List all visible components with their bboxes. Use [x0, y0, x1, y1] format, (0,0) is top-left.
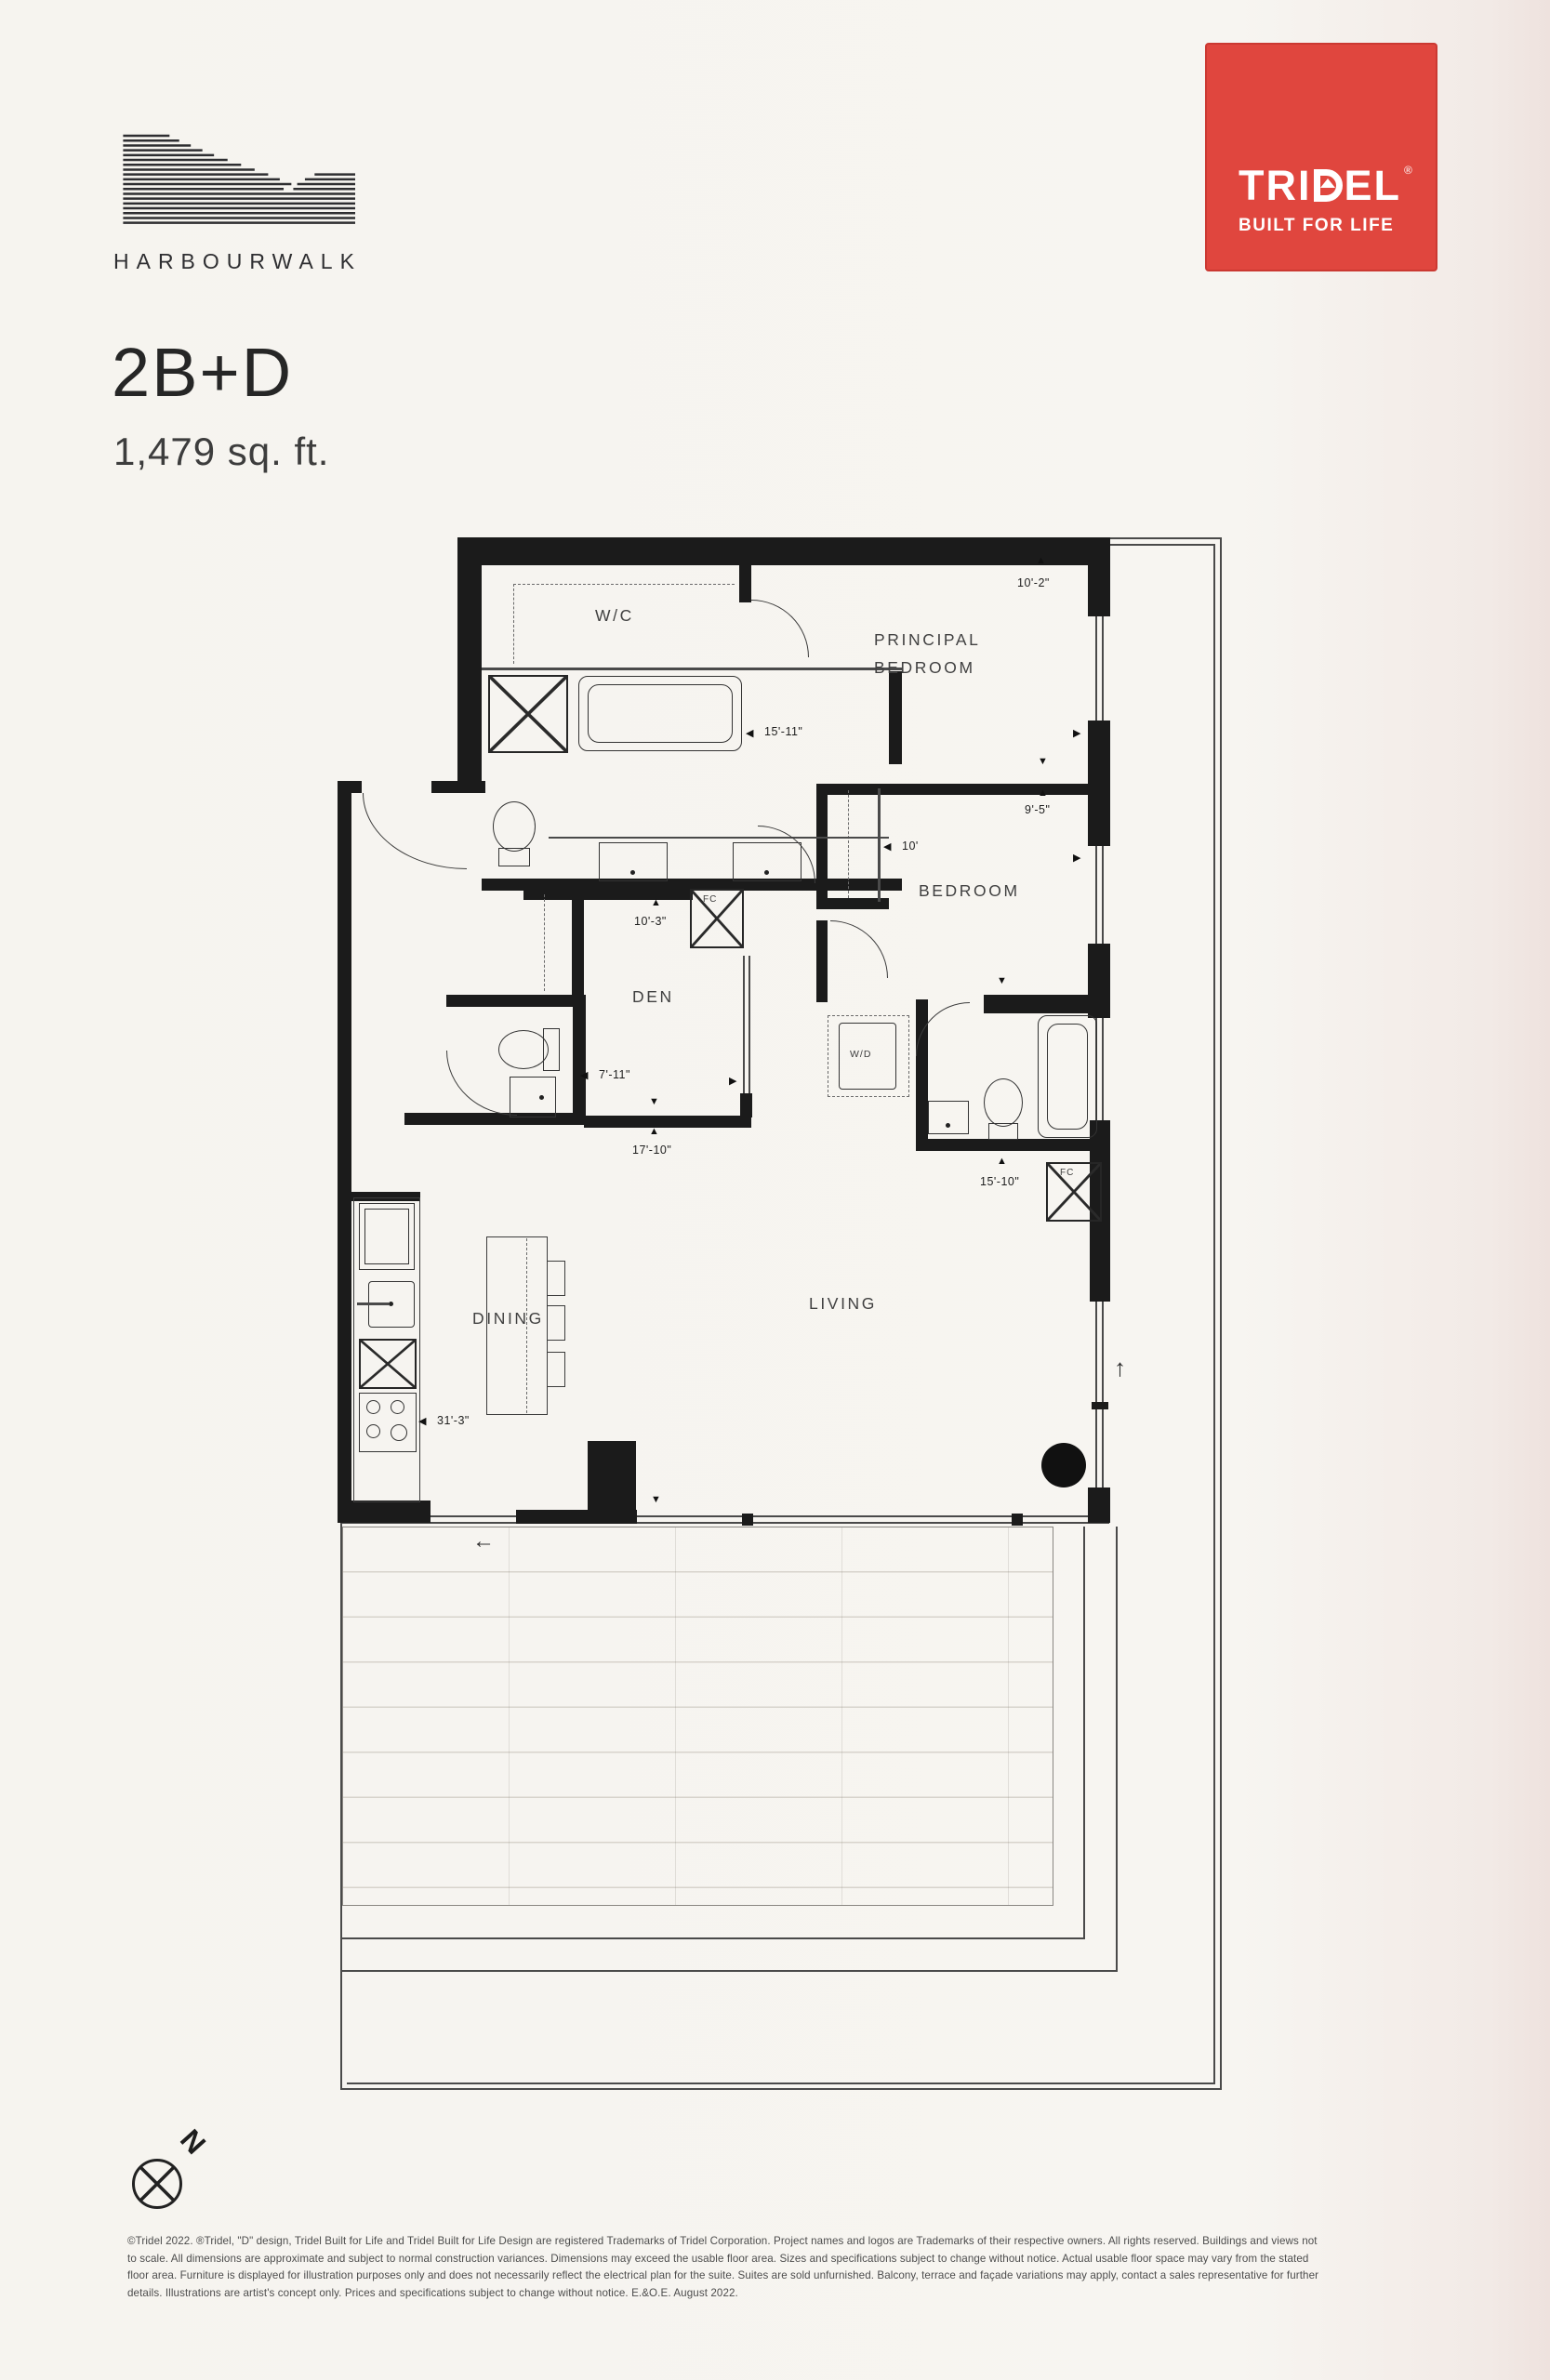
wall-bottom-corner [338, 1501, 431, 1523]
wall-left-lower [338, 788, 351, 1520]
wall-den-top [523, 889, 693, 900]
room-label-den: DEN [632, 987, 674, 1007]
terrace-outer-right1 [1220, 537, 1222, 2090]
window-bottom-pier2 [1012, 1514, 1023, 1526]
bath2-toilet-bowl [984, 1078, 1023, 1127]
dining-chair-1 [547, 1261, 565, 1296]
dim-arrow-up-icon: ▲ [651, 898, 661, 908]
dim-arrow-down-icon: ▼ [649, 1097, 659, 1107]
window-pointer-icon: ▼ [997, 976, 1007, 986]
room-label-bedroom: BEDROOM [919, 881, 1020, 901]
vanity-sink-1 [599, 842, 668, 881]
compass-north-label: N [173, 2123, 212, 2162]
window-right-tick [1092, 1402, 1108, 1409]
powder-sink-drain [539, 1095, 544, 1100]
dim-den-width: 10'-3" [634, 915, 667, 928]
dim-den-overall: 17'-10" [632, 1144, 671, 1157]
wall-bath2-left [916, 999, 928, 1150]
wall-den-bottom [584, 1116, 751, 1128]
stove-burner-3 [366, 1424, 380, 1438]
dim-arrow-left-icon: ◀ [746, 729, 753, 739]
wall-ensuite-right [889, 671, 902, 764]
terrace-outline-a-right [1083, 1527, 1085, 1939]
wall-bedroom-closet-left [816, 784, 828, 909]
dim-arrow-up-icon: ▲ [1038, 788, 1048, 799]
slider-pointer-icon: ▶ [729, 1077, 736, 1087]
legal-disclaimer: ©Tridel 2022. ®Tridel, "D" design, Tride… [127, 2233, 1429, 2302]
dim-arrow-left-icon: ◀ [883, 842, 891, 853]
terrace-outline-b-bottom [340, 1970, 1118, 1972]
room-label-wc: W/C [595, 606, 634, 626]
room-label-dining: DINING [472, 1309, 544, 1329]
terrace-outer-left [340, 1520, 342, 2090]
window-right-pier1 [1088, 537, 1110, 616]
bath2-sink-drain [946, 1123, 950, 1128]
wall-wc-right [739, 537, 751, 602]
dim-principal-width: 10'-2" [1017, 576, 1050, 589]
closet-row-top [482, 668, 902, 670]
wall-powder-top [446, 995, 586, 1007]
bedroom-closet-rod [848, 790, 849, 898]
dining-chair-3 [547, 1352, 565, 1387]
dim-suite-length: 31'-3" [437, 1414, 470, 1427]
terrace-outer-bottom2 [347, 2082, 1215, 2084]
dim-living-width: 15'-10" [980, 1175, 1019, 1188]
wc-shelf-dash [513, 584, 735, 585]
den-slider-line2 [749, 956, 750, 1093]
terrace-pavers [342, 1527, 1053, 1906]
dining-chair-2 [547, 1305, 565, 1341]
dim-arrow-left-icon: ◀ [580, 1071, 588, 1081]
dim-bedroom-closet: 10' [902, 840, 919, 853]
bath2-sink [928, 1101, 969, 1134]
powder-toilet-tank [543, 1028, 560, 1071]
legal-line-4: details. Illustrations are artist's conc… [127, 2285, 1429, 2303]
stove-burner-4 [391, 1424, 407, 1441]
window-bottom-line2 [342, 1522, 1109, 1524]
room-label-principal-1: PRINCIPAL [874, 630, 981, 650]
room-label-living: LIVING [809, 1294, 877, 1314]
window-pointer-icon: ▶ [1073, 853, 1080, 864]
dim-arrow-left-icon: ◀ [418, 1417, 426, 1427]
stove-burner-1 [366, 1400, 380, 1414]
column-block [588, 1441, 636, 1515]
powder-door-arc [446, 1051, 517, 1116]
wd-label: W/D [850, 1049, 871, 1060]
room-label-principal-2: BEDROOM [874, 658, 975, 678]
fridge-inner [364, 1209, 409, 1264]
stove-burner-2 [391, 1400, 404, 1414]
fc-label-living: FC [1060, 1168, 1074, 1178]
entry-door-arc [363, 793, 467, 869]
dim-bedroom-depth: 9'-5" [1025, 803, 1050, 816]
ensuite-toilet-tank [498, 848, 530, 866]
wc-door-arc [751, 600, 809, 657]
window-bottom-pier1 [742, 1514, 753, 1526]
vanity-sink-1-drain [630, 870, 635, 875]
window-right-line2 [1102, 537, 1104, 1518]
wc-shelf-dash-v [513, 584, 514, 664]
wall-powder-right [573, 995, 586, 1125]
window-right-corner [1088, 1487, 1110, 1523]
bedroom-closet-front [878, 788, 881, 902]
compass-icon [132, 2159, 182, 2209]
terrace-outer-top2 [1108, 544, 1214, 546]
legal-line-1: ©Tridel 2022. ®Tridel, "D" design, Tride… [127, 2233, 1429, 2251]
bath2-toilet-base [988, 1123, 1018, 1140]
window-pointer-icon: ▶ [1073, 729, 1080, 739]
kitchen-faucet [357, 1302, 389, 1305]
ensuite-toilet-bowl [493, 801, 536, 852]
vanity-counter [549, 837, 889, 839]
ensuite-bathtub [578, 676, 742, 751]
window-pointer-icon: ▼ [651, 1495, 661, 1505]
fc-label-den: FC [703, 894, 717, 905]
terrace-outer-bottom1 [340, 2088, 1222, 2090]
wall-left-upper [457, 537, 482, 788]
dim-den-depth: 7'-11" [599, 1068, 630, 1081]
round-column [1041, 1443, 1086, 1487]
wall-top [457, 537, 1108, 565]
wall-bath2-top [984, 995, 1097, 1013]
ensuite-shower [488, 675, 568, 753]
den-slider-line1 [743, 956, 745, 1093]
wall-den-left [572, 889, 584, 1000]
wall-hall-left [816, 920, 828, 1002]
terrace-outer-right2 [1213, 544, 1215, 2084]
legal-line-3: floor area. Furniture is displayed for i… [127, 2268, 1429, 2285]
wall-bath2-bottom [916, 1139, 1108, 1151]
wall-powder-bottom [404, 1113, 586, 1125]
dim-arrow-up-icon: ▲ [1036, 556, 1046, 566]
den-slider-stub [740, 1093, 752, 1117]
dim-ensuite-width: 15'-11" [764, 725, 802, 738]
legal-line-2: to scale. All dimensions are approximate… [127, 2251, 1429, 2268]
dim-arrow-down-icon: ▼ [1038, 757, 1048, 767]
bedroom-door-arc [830, 920, 888, 978]
wall-entry-right [431, 781, 485, 793]
terrace-outer-top1 [1108, 537, 1222, 539]
kitchen-sink-drain [389, 1302, 393, 1306]
terrace-outline-b-right [1116, 1527, 1118, 1972]
wall-bedroom-divider [816, 784, 1108, 795]
floor-plan: W/D W/C PRINCIPAL BEDROOM BEDROOM DEN DI… [0, 0, 1550, 2380]
terrace-outline-a-bottom [340, 1937, 1085, 1939]
window-bottom-line1 [342, 1515, 1109, 1517]
hall-door-arc [758, 826, 815, 883]
foyer-closet-dash [544, 894, 545, 991]
balcony-door-arrow-icon: ← [472, 1530, 495, 1553]
dim-arrow-up-icon: ▲ [997, 1157, 1007, 1167]
bath2-bathtub [1038, 1015, 1097, 1138]
suite-entry-arrow-icon: ↑ [1114, 1355, 1126, 1380]
dim-arrow-up-icon: ▲ [649, 1127, 659, 1137]
